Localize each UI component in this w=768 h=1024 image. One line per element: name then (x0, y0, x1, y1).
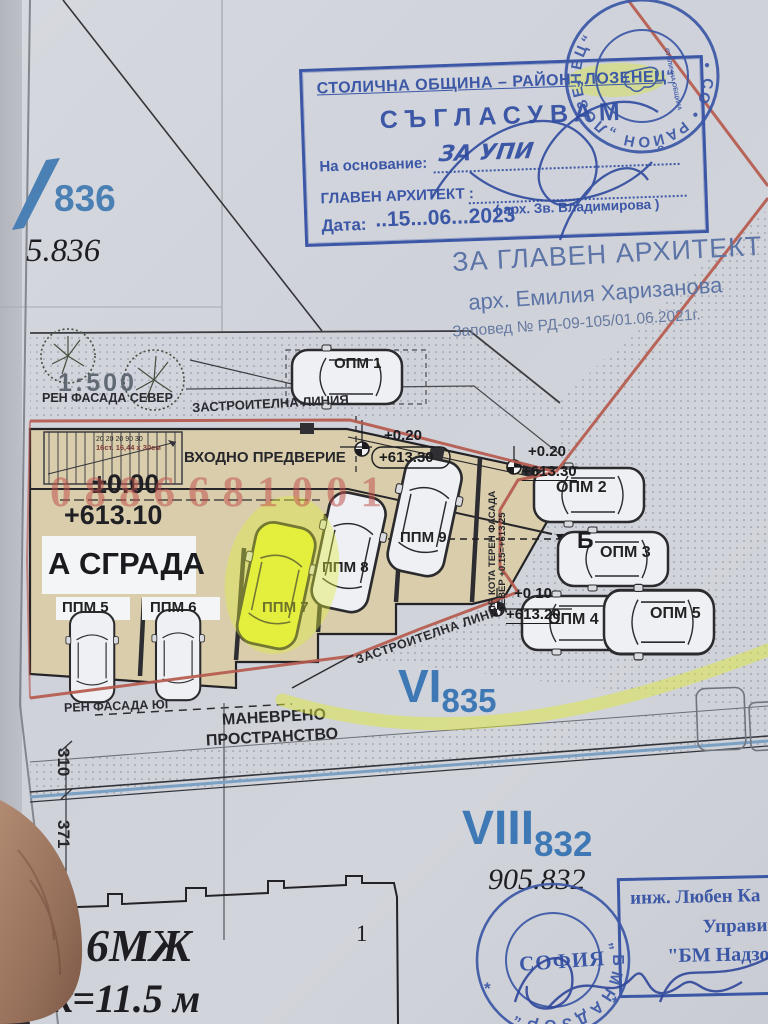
finger (0, 790, 120, 1024)
photographed-site-plan: 1:500 РЕН ФАСАДА СЕВЕР ЗАСТРОИТЕЛНА ЛИНИ… (0, 0, 768, 1024)
